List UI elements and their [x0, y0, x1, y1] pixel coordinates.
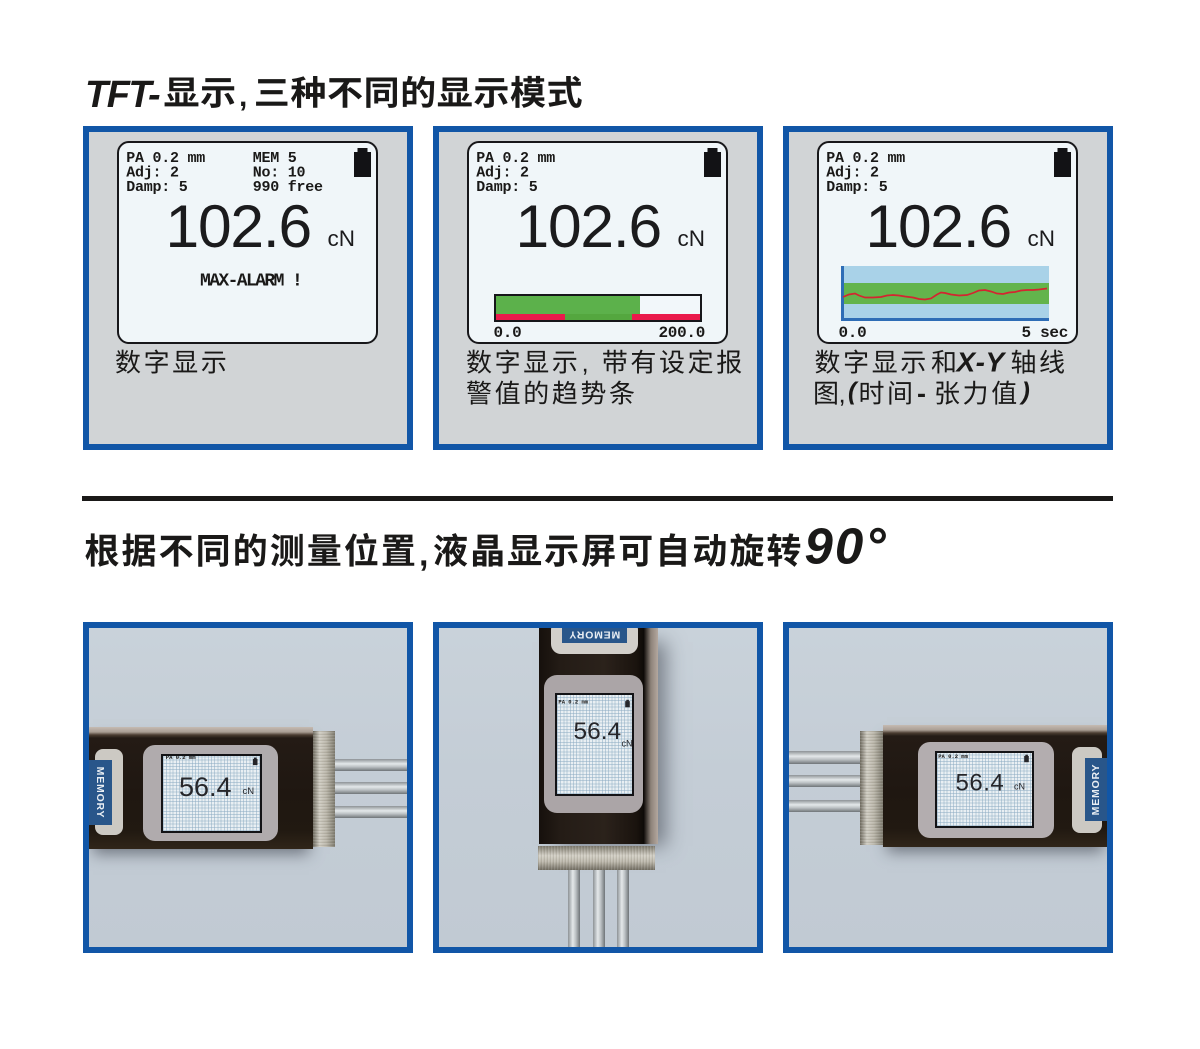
svg-text:102.6: 102.6	[516, 192, 661, 260]
svg-text:PA 0.2 mm: PA 0.2 mm	[938, 753, 968, 760]
svg-text:MEMORY: MEMORY	[569, 629, 621, 641]
svg-text:200.0: 200.0	[658, 324, 705, 342]
svg-text:MAX-ALARM !: MAX-ALARM !	[200, 272, 301, 292]
svg-text:,: ,	[839, 379, 846, 409]
svg-text:X-Y: X-Y	[955, 347, 1007, 378]
svg-text:56.4: 56.4	[956, 770, 1005, 797]
svg-text:0.0: 0.0	[494, 324, 522, 342]
svg-text:cN: cN	[678, 226, 706, 251]
svg-text:MEMORY: MEMORY	[94, 767, 106, 819]
svg-text:cN: cN	[243, 786, 255, 797]
svg-text:56.4: 56.4	[574, 718, 622, 745]
svg-text:,: ,	[419, 536, 428, 574]
svg-text:56.4: 56.4	[179, 772, 232, 802]
svg-text:,: ,	[239, 80, 247, 113]
svg-text:(: (	[848, 378, 859, 406]
svg-text:cN: cN	[1028, 226, 1056, 251]
svg-text:0.0: 0.0	[839, 324, 867, 342]
svg-text:MEMORY: MEMORY	[1090, 764, 1102, 816]
svg-text:cN: cN	[1014, 782, 1025, 792]
svg-text:cN: cN	[328, 226, 356, 251]
svg-text:5 sec: 5 sec	[1021, 324, 1068, 342]
svg-text:PA 0.2 mm: PA 0.2 mm	[166, 754, 196, 761]
svg-text:102.6: 102.6	[166, 192, 311, 260]
svg-text:PA 0.2 mm: PA 0.2 mm	[558, 699, 588, 706]
svg-text:-: -	[917, 379, 926, 409]
svg-text:,: ,	[582, 348, 589, 378]
svg-text:90°: 90°	[805, 518, 888, 575]
svg-text:cN: cN	[622, 739, 633, 749]
svg-text:102.6: 102.6	[866, 192, 1011, 260]
svg-text:TFT-: TFT-	[85, 74, 160, 116]
svg-text:): )	[1019, 378, 1030, 406]
